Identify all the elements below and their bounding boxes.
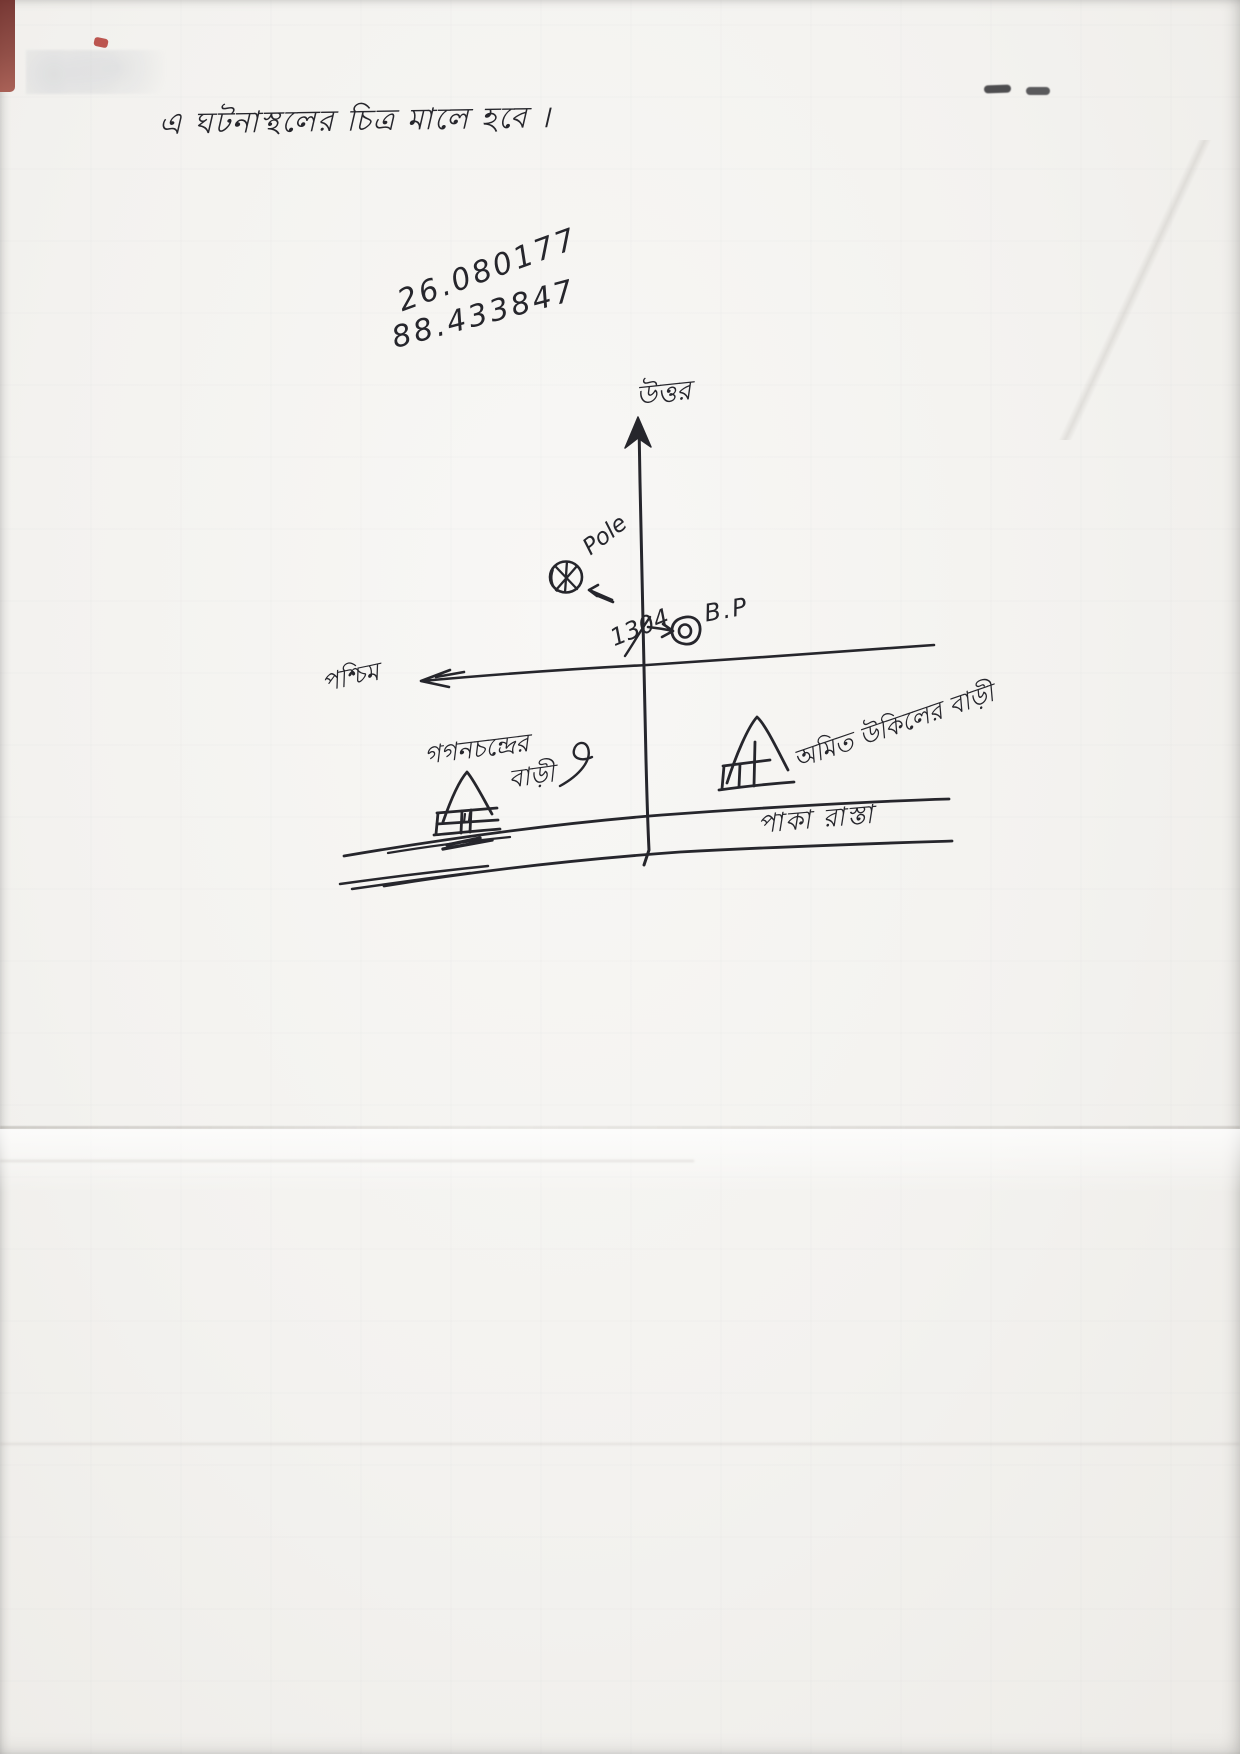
label-flourish [560,743,592,786]
north-label: উত্তর [634,370,694,421]
pole-icon [550,562,582,593]
scanned-sketch-page: এ ঘটনাস্থলের চিত্র মালে হবে । 26.080177 … [0,0,1240,1754]
bp-icon [672,617,700,644]
west-line [422,645,934,681]
left-house-label-line2: বাড়ী [506,754,558,803]
left-house-icon [434,772,500,835]
north-axis-line [639,424,649,865]
sketch-title: এ ঘটনাস্থলের চিত্র মালে হবে । [158,93,552,151]
pole-pointer-arrow [589,585,613,602]
right-house-icon [719,717,794,790]
sketch-drawing [0,0,1240,1754]
